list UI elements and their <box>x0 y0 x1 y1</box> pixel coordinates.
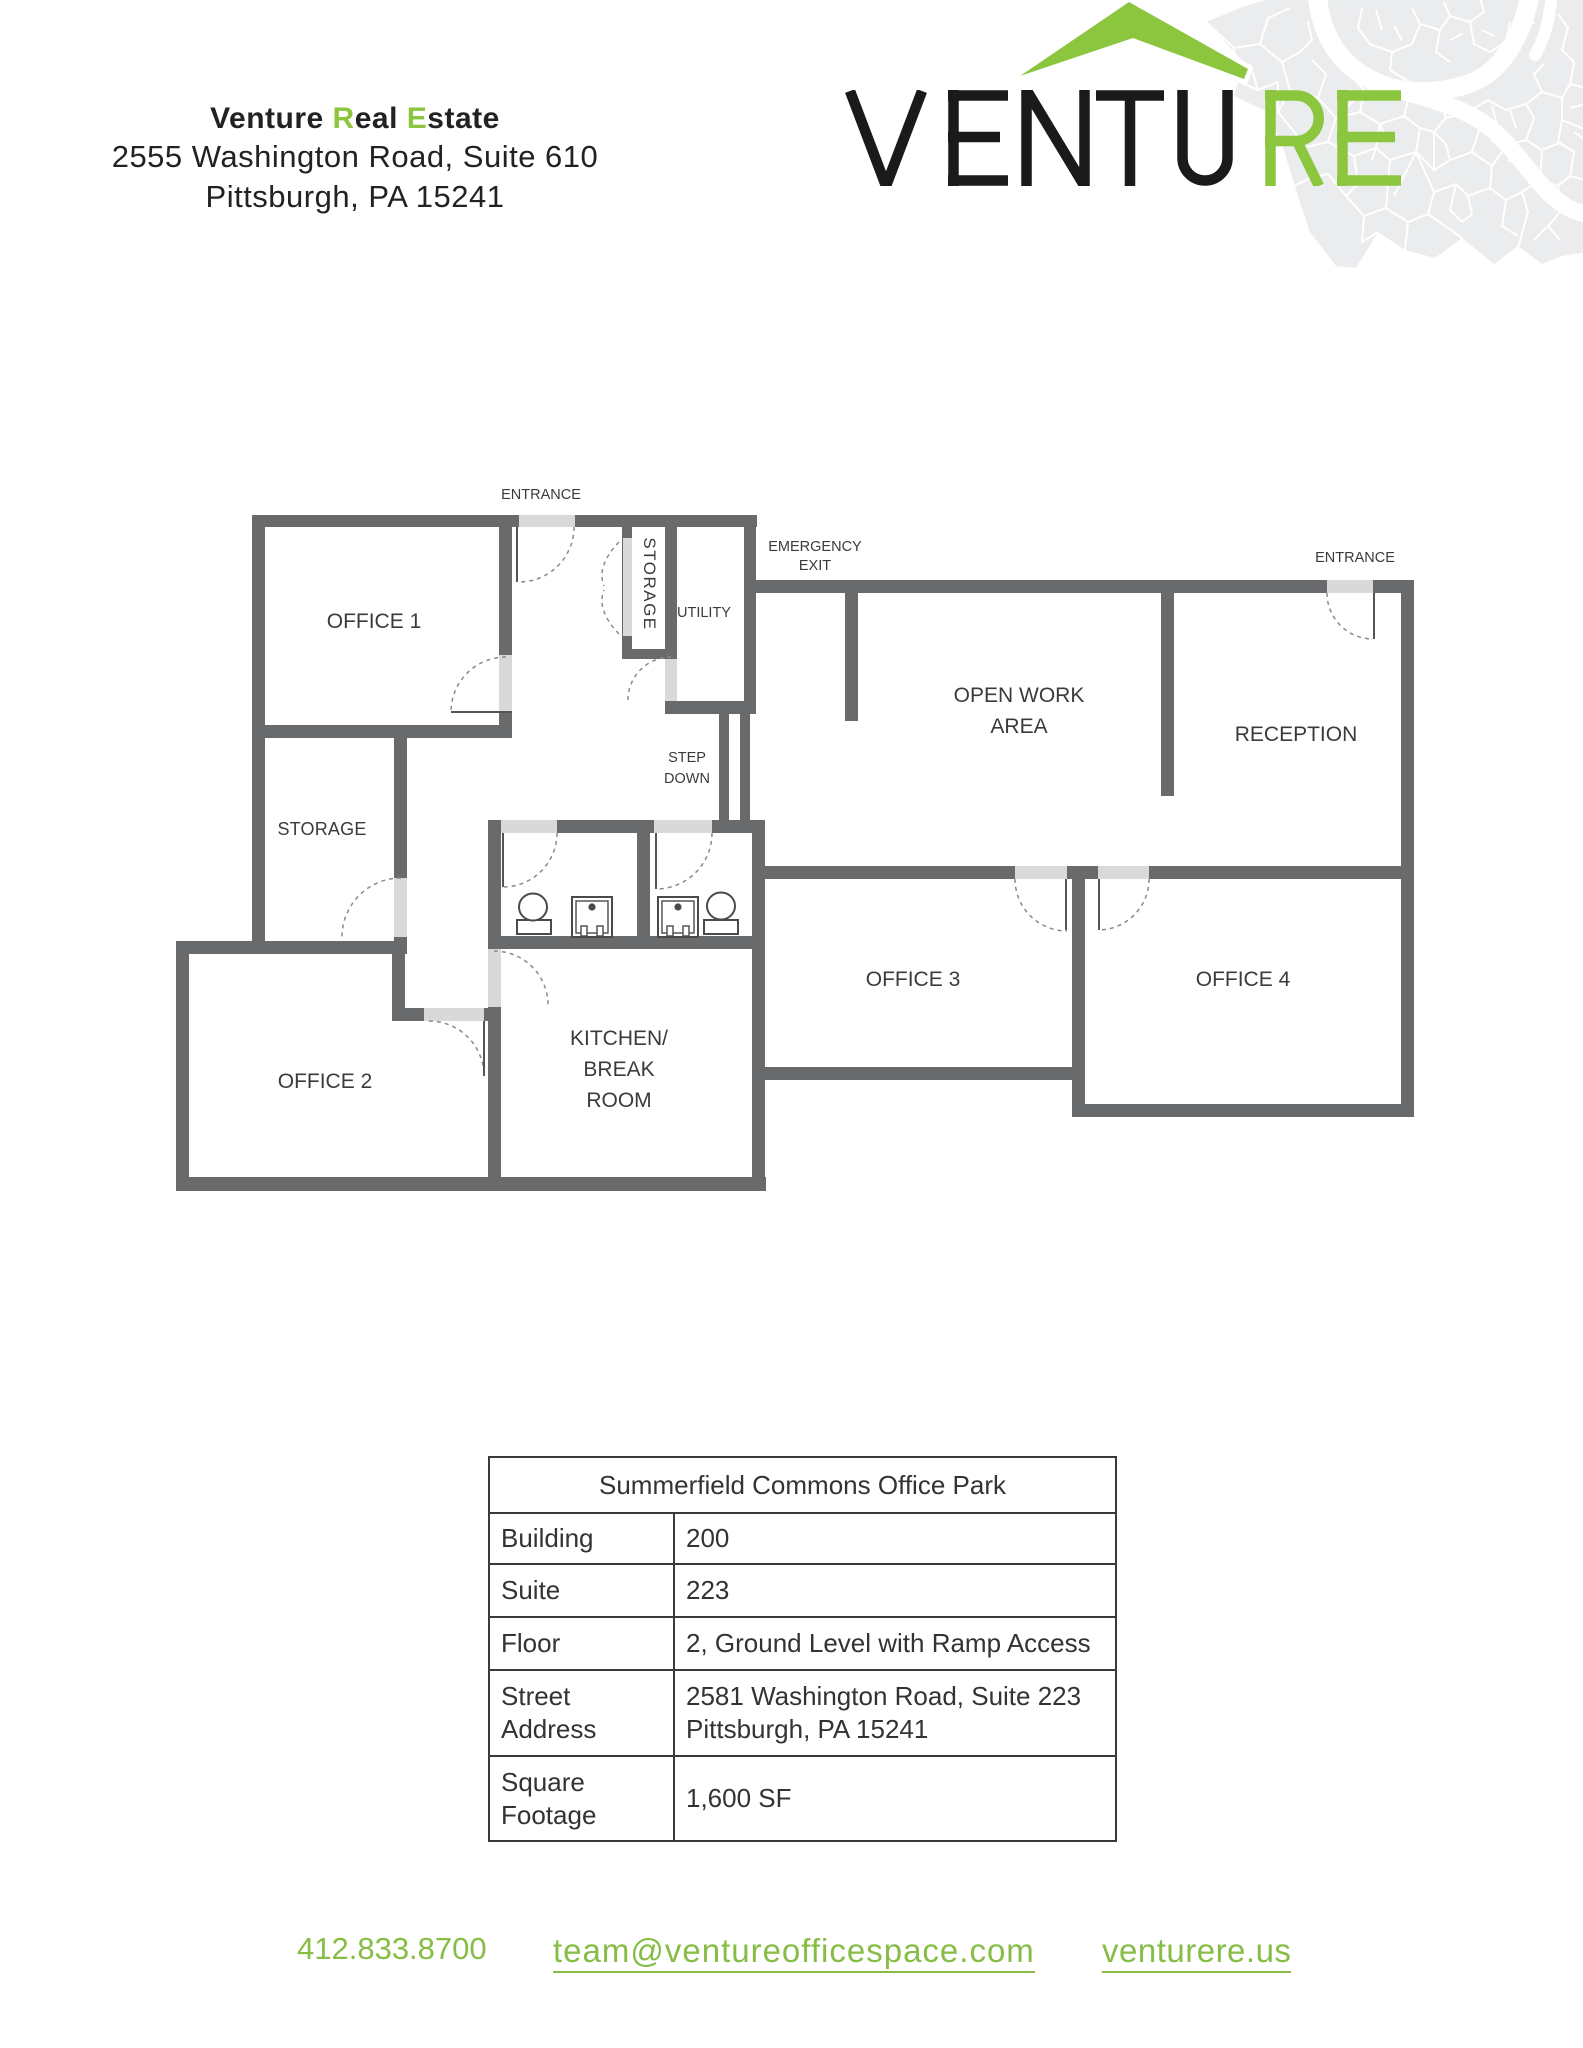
svg-text:STORAGE: STORAGE <box>640 537 659 630</box>
svg-text:OPEN WORK: OPEN WORK <box>954 684 1085 707</box>
svg-text:OFFICE 4: OFFICE 4 <box>1196 968 1291 991</box>
svg-text:OFFICE 1: OFFICE 1 <box>327 610 422 633</box>
svg-text:STEP: STEP <box>668 750 706 766</box>
svg-text:EMERGENCY: EMERGENCY <box>768 539 862 555</box>
svg-text:DOWN: DOWN <box>664 771 710 787</box>
svg-text:EXIT: EXIT <box>799 558 831 574</box>
svg-text:KITCHEN/: KITCHEN/ <box>570 1027 668 1050</box>
svg-text:OFFICE 3: OFFICE 3 <box>866 968 961 991</box>
svg-text:ENTRANCE: ENTRANCE <box>1315 550 1395 566</box>
svg-text:OFFICE 2: OFFICE 2 <box>278 1070 373 1093</box>
svg-text:AREA: AREA <box>990 715 1047 738</box>
svg-text:STORAGE: STORAGE <box>277 819 366 839</box>
svg-text:ENTRANCE: ENTRANCE <box>501 487 581 503</box>
svg-text:RECEPTION: RECEPTION <box>1235 723 1358 746</box>
svg-text:UTILITY: UTILITY <box>677 605 731 621</box>
svg-text:ROOM: ROOM <box>586 1089 651 1112</box>
svg-text:BREAK: BREAK <box>583 1058 654 1081</box>
